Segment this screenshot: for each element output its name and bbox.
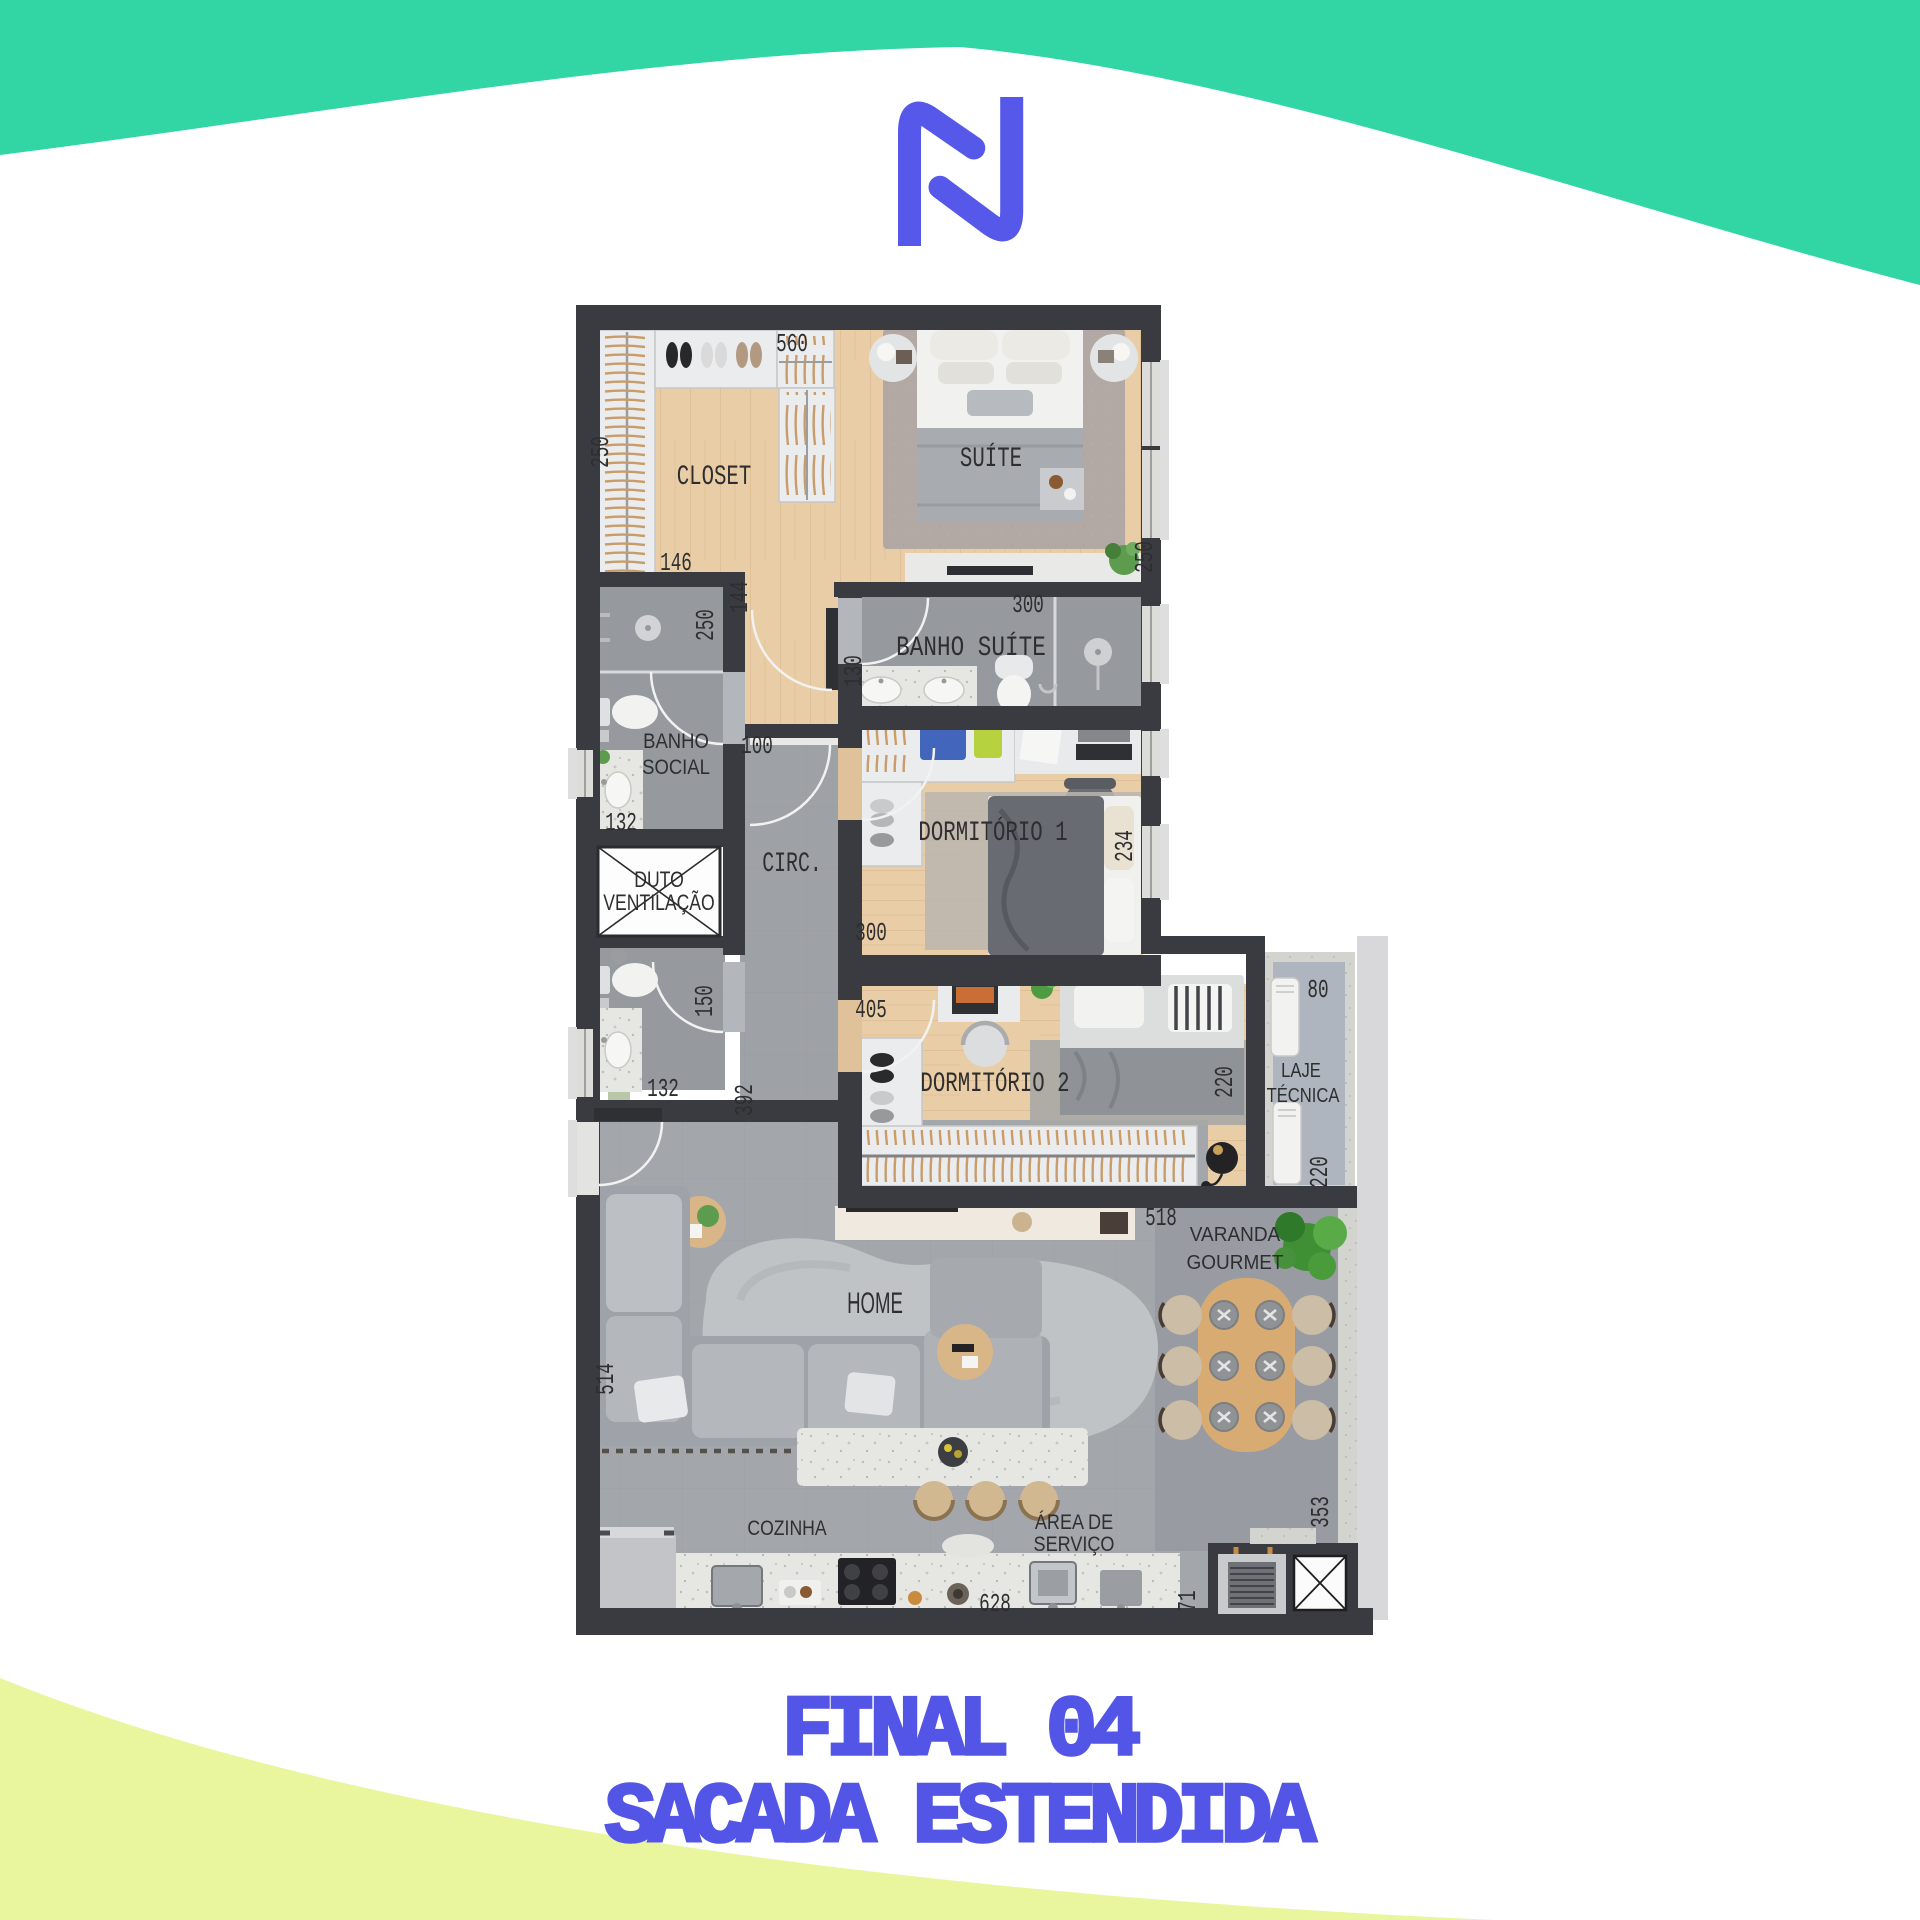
svg-text:220: 220 [1210, 1066, 1240, 1098]
svg-text:HOME: HOME [847, 1287, 903, 1321]
svg-text:DUTO: DUTO [634, 868, 684, 892]
svg-text:100: 100 [741, 731, 773, 761]
svg-text:VENTILAÇÃO: VENTILAÇÃO [603, 889, 714, 916]
svg-text:144: 144 [725, 581, 755, 613]
svg-text:SUÍTE: SUÍTE [960, 443, 1022, 475]
svg-text:BANHO SUÍTE: BANHO SUÍTE [896, 631, 1046, 664]
svg-text:150: 150 [690, 985, 720, 1017]
svg-text:300: 300 [855, 918, 887, 948]
svg-text:628: 628 [979, 1589, 1011, 1619]
svg-text:514: 514 [591, 1363, 621, 1395]
svg-text:TÉCNICA: TÉCNICA [1267, 1084, 1340, 1107]
svg-text:CIRC.: CIRC. [762, 849, 822, 880]
svg-text:132: 132 [605, 808, 637, 838]
svg-text:405: 405 [855, 995, 887, 1025]
svg-text:220: 220 [1305, 1156, 1335, 1188]
svg-text:DORMITÓRIO 2: DORMITÓRIO 2 [920, 1067, 1069, 1100]
svg-text:353: 353 [1306, 1496, 1336, 1528]
svg-text:ÁREA DE: ÁREA DE [1035, 1510, 1113, 1535]
svg-text:234: 234 [1110, 830, 1140, 862]
svg-text:71: 71 [1173, 1590, 1203, 1611]
svg-text:COZINHA: COZINHA [747, 1517, 826, 1541]
svg-text:SOCIAL: SOCIAL [642, 756, 710, 779]
svg-text:80: 80 [1307, 975, 1328, 1005]
svg-text:392: 392 [730, 1084, 760, 1116]
svg-text:250: 250 [1130, 541, 1160, 573]
svg-text:560: 560 [776, 329, 808, 359]
svg-text:300: 300 [1012, 590, 1044, 620]
svg-text:SERVIÇO: SERVIÇO [1034, 1533, 1115, 1557]
svg-text:130: 130 [839, 655, 869, 687]
svg-text:DORMITÓRIO 1: DORMITÓRIO 1 [918, 816, 1067, 849]
svg-text:132: 132 [647, 1074, 679, 1104]
svg-text:FINAL 04: FINAL 04 [782, 1683, 1139, 1780]
svg-text:GOURMET: GOURMET [1186, 1252, 1283, 1275]
svg-text:250: 250 [691, 609, 721, 641]
svg-text:VARANDA: VARANDA [1190, 1224, 1280, 1247]
svg-text:250: 250 [586, 436, 616, 468]
svg-text:146: 146 [660, 548, 692, 578]
svg-text:SACADA ESTENDIDA: SACADA ESTENDIDA [605, 1770, 1317, 1867]
svg-text:LAJE: LAJE [1281, 1059, 1321, 1082]
svg-text:CLOSET: CLOSET [677, 461, 752, 493]
svg-text:518: 518 [1145, 1203, 1177, 1233]
svg-text:BANHO: BANHO [643, 730, 709, 753]
